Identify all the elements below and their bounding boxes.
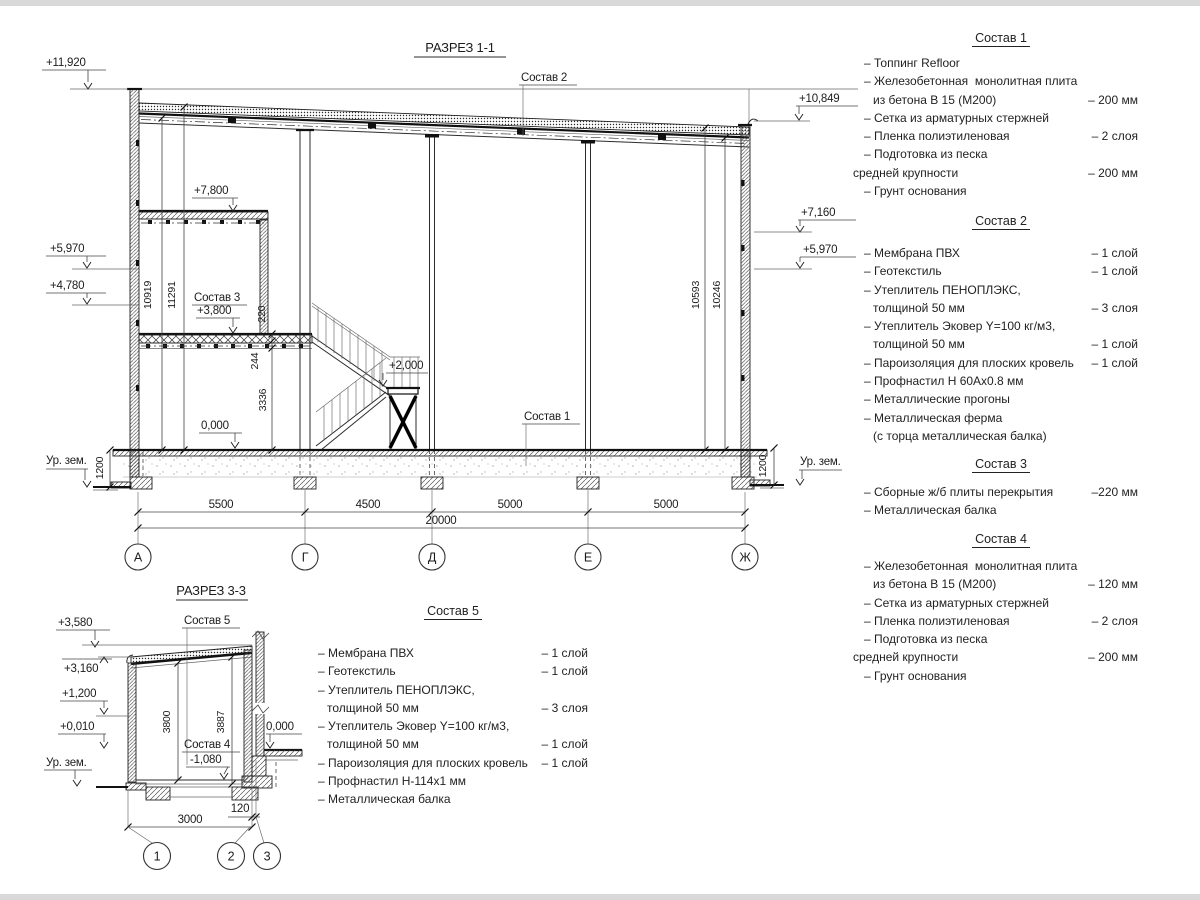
composition-row: – Утеплитель Эковер Y=100 кг/м3, [864, 317, 1138, 335]
level-label: +3,800 [197, 305, 231, 317]
composition-row: – Профнастил Н 60Ах0.8 мм [864, 372, 1138, 390]
composition-title: Состав 1 [864, 31, 1138, 47]
level-label: +1,200 [62, 688, 96, 700]
composition-row: – Мембрана ПВХ– 1 слой [318, 644, 588, 662]
level-label: +7,160 [801, 207, 835, 219]
dim-label: 220 [256, 305, 268, 322]
section-title: РАЗРЕЗ 3-3 [176, 583, 246, 598]
level-label: -1,080 [190, 754, 221, 766]
axis-label: Д [428, 551, 437, 565]
section-3-3: РАЗРЕЗ 3-3 Состав 5 Состав 4 +3,580 +3,1… [44, 583, 302, 870]
composition-row: из бетона В 15 (М200)– 120 мм [864, 575, 1138, 593]
composition-block-1: Состав 1 – Топпинг Refloor – Железобетон… [864, 31, 1138, 200]
callout-leaders [192, 85, 580, 466]
section-1-1: РАЗРЕЗ 1-1 Состав 2 Состав 1 Состав 3 +1… [42, 40, 858, 570]
dim-label: 3800 [161, 710, 173, 733]
composition-row: – Грунт основания [864, 182, 1138, 200]
left-wall [127, 89, 142, 477]
ground-level-label: Ур. зем. [46, 757, 87, 769]
level-label: +10,849 [799, 93, 840, 105]
callout-label: Состав 2 [521, 72, 567, 84]
composition-row: – Мембрана ПВХ– 1 слой [864, 244, 1138, 262]
level-label: +5,970 [803, 244, 837, 256]
composition-title: Состав 4 [864, 532, 1138, 548]
composition-row: – Геотекстиль– 1 слой [864, 262, 1138, 280]
level-label: 0,000 [201, 420, 229, 432]
composition-row: – Металлическая балка [318, 790, 588, 808]
composition-row: – Утеплитель ПЕНОПЛЭКС, [318, 681, 588, 699]
composition-row: – Пленка полиэтиленовая– 2 слоя [864, 127, 1138, 145]
dim-label: 10919 [142, 281, 154, 310]
axis-label: 1 [154, 850, 161, 864]
composition-row: из бетона В 15 (М200)– 200 мм [864, 91, 1138, 109]
composition-row: толщиной 50 мм– 1 слой [864, 335, 1138, 353]
dim-label: 11291 [166, 281, 178, 309]
level-label: 0,000 [266, 721, 294, 733]
axis-label: А [134, 551, 143, 565]
dim-label: 1200 [94, 456, 106, 479]
composition-row: – Сетка из арматурных стержней [864, 109, 1138, 127]
composition-row: – Железобетонная монолитная плита [864, 557, 1138, 575]
dim-label: 20000 [426, 515, 457, 527]
callout-label: Состав 1 [524, 411, 570, 423]
annex-roof [127, 646, 252, 668]
dim-label: 5000 [654, 499, 679, 511]
axis-label: Ж [739, 551, 751, 565]
dim-label: 5000 [498, 499, 523, 511]
ground-slab [93, 450, 784, 490]
composition-title: Состав 2 [864, 214, 1138, 230]
level-label: +7,800 [194, 185, 228, 197]
axis-label: 3 [264, 850, 271, 864]
composition-row: – Пленка полиэтиленовая– 2 слоя [864, 612, 1138, 630]
composition-row: – Подготовка из песка [864, 630, 1138, 648]
dim-label: 3000 [178, 814, 203, 826]
level-label: +3,160 [64, 663, 98, 675]
composition-row: – Металлические прогоны [864, 390, 1138, 408]
composition-row: – Утеплитель ПЕНОПЛЭКС, [864, 281, 1138, 299]
composition-row: – Металлическая балка [864, 501, 1138, 519]
section-title: РАЗРЕЗ 1-1 [425, 40, 495, 55]
composition-block-3: Состав 3 – Сборные ж/б плиты перекрытия–… [864, 457, 1138, 520]
level-label: +3,580 [58, 617, 92, 629]
annex-floor [136, 780, 244, 784]
composition-row: – Пароизоляция для плоских кровель– 1 сл… [318, 754, 588, 772]
axis-label: Е [584, 551, 592, 565]
composition-row: – Пароизоляция для плоских кровель– 1 сл… [864, 354, 1138, 372]
level-label: +4,780 [50, 280, 84, 292]
composition-block-4: Состав 4 – Железобетонная монолитная пли… [864, 532, 1138, 685]
composition-row: средней крупности– 200 мм [853, 648, 1138, 666]
axis-label: 2 [228, 850, 235, 864]
callout-label: Состав 5 [184, 615, 230, 627]
dim-label: 10593 [690, 281, 702, 310]
ground-level-label: Ур. зем. [46, 455, 87, 467]
composition-row: – Подготовка из песка [864, 145, 1138, 163]
dim-label: 3336 [257, 388, 269, 411]
composition-row: средней крупности– 200 мм [853, 164, 1138, 182]
dim-label: 1200 [757, 454, 769, 477]
dim-label: 120 [231, 803, 250, 815]
level-label: +0,010 [60, 721, 94, 733]
composition-title: Состав 3 [864, 457, 1138, 473]
right-wall [738, 119, 758, 477]
composition-row: – Железобетонная монолитная плита [864, 72, 1138, 90]
composition-title: Состав 5 [318, 604, 588, 620]
composition-row: – Сетка из арматурных стержней [864, 594, 1138, 612]
composition-row: – Утеплитель Эковер Y=100 кг/м3, [318, 717, 588, 735]
drawing-sheet: РАЗРЕЗ 1-1 Состав 2 Состав 1 Состав 3 +1… [0, 0, 1200, 900]
composition-row: – Грунт основания [864, 667, 1138, 685]
dim-label: 244 [249, 352, 261, 369]
composition-block-5: Состав 5 – Мембрана ПВХ– 1 слой – Геотек… [318, 604, 588, 809]
level-label: +2,000 [389, 360, 423, 372]
composition-row: – Геотекстиль– 1 слой [318, 662, 588, 680]
roof [139, 103, 749, 147]
floor-3800 [139, 334, 312, 349]
composition-row: толщиной 50 мм– 3 слоя [318, 699, 588, 717]
composition-row: – Металлическая ферма [864, 409, 1138, 427]
dim-label: 10246 [711, 281, 723, 310]
level-label: +11,920 [46, 57, 86, 69]
composition-row: – Топпинг Refloor [864, 54, 1138, 72]
main-wall [252, 631, 269, 756]
callout-label: Состав 4 [184, 739, 231, 751]
composition-block-2: Состав 2 – Мембрана ПВХ– 1 слой – Геотек… [864, 214, 1138, 445]
composition-row: (с торца металлическая балка) [864, 427, 1138, 445]
dim-label: 3887 [215, 710, 227, 733]
dim-label: 5500 [209, 499, 234, 511]
composition-row: – Профнастил Н-114х1 мм [318, 772, 588, 790]
ground-level-label: Ур. зем. [800, 456, 841, 468]
composition-row: толщиной 50 мм– 1 слой [318, 735, 588, 753]
composition-row: – Сборные ж/б плиты перекрытия–220 мм [864, 483, 1138, 501]
composition-row: толщиной 50 мм– 3 слоя [864, 299, 1138, 317]
callout-label: Состав 3 [194, 292, 240, 304]
stairs [312, 303, 420, 450]
level-label: +5,970 [50, 243, 84, 255]
dim-label: 4500 [356, 499, 381, 511]
axis-label: Г [302, 551, 309, 565]
floor-7800 [139, 211, 268, 224]
